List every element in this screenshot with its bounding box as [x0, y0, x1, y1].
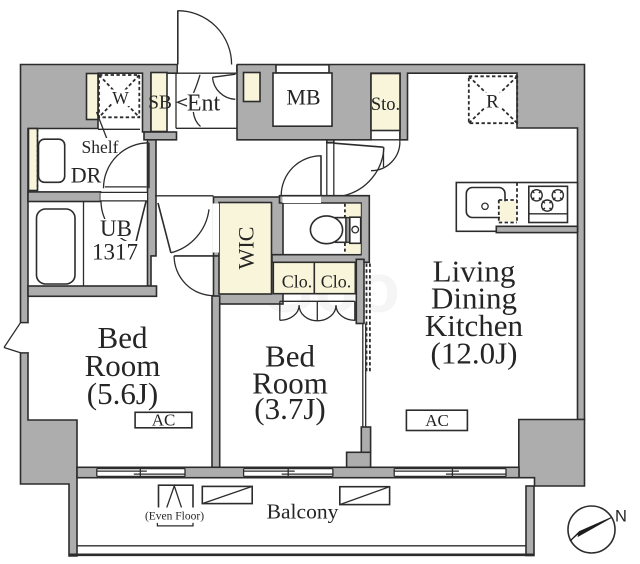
svg-text:AC: AC	[425, 411, 449, 430]
svg-text:W: W	[112, 88, 129, 108]
svg-text:(5.6J): (5.6J)	[87, 376, 158, 411]
svg-text:Sto.: Sto.	[371, 95, 400, 115]
svg-text:(3.7J): (3.7J)	[254, 391, 325, 426]
svg-text:Shelf: Shelf	[82, 137, 119, 157]
svg-text:R: R	[486, 92, 499, 113]
svg-text:SB: SB	[148, 93, 172, 114]
svg-text:Clo.: Clo.	[282, 272, 313, 292]
svg-text:(Even Floor): (Even Floor)	[145, 511, 204, 523]
svg-text:AC: AC	[152, 411, 176, 430]
svg-text:MB: MB	[286, 85, 320, 110]
svg-text:1317: 1317	[92, 240, 138, 265]
svg-text:UB: UB	[100, 216, 132, 241]
svg-text:Ent: Ent	[187, 91, 221, 117]
svg-text:Balcony: Balcony	[267, 500, 339, 524]
svg-text:WIC: WIC	[234, 227, 259, 270]
svg-text:DR: DR	[71, 163, 102, 188]
svg-text:N: N	[615, 508, 627, 526]
svg-text:(12.0J): (12.0J)	[431, 336, 518, 371]
svg-text:Clo.: Clo.	[321, 272, 352, 292]
